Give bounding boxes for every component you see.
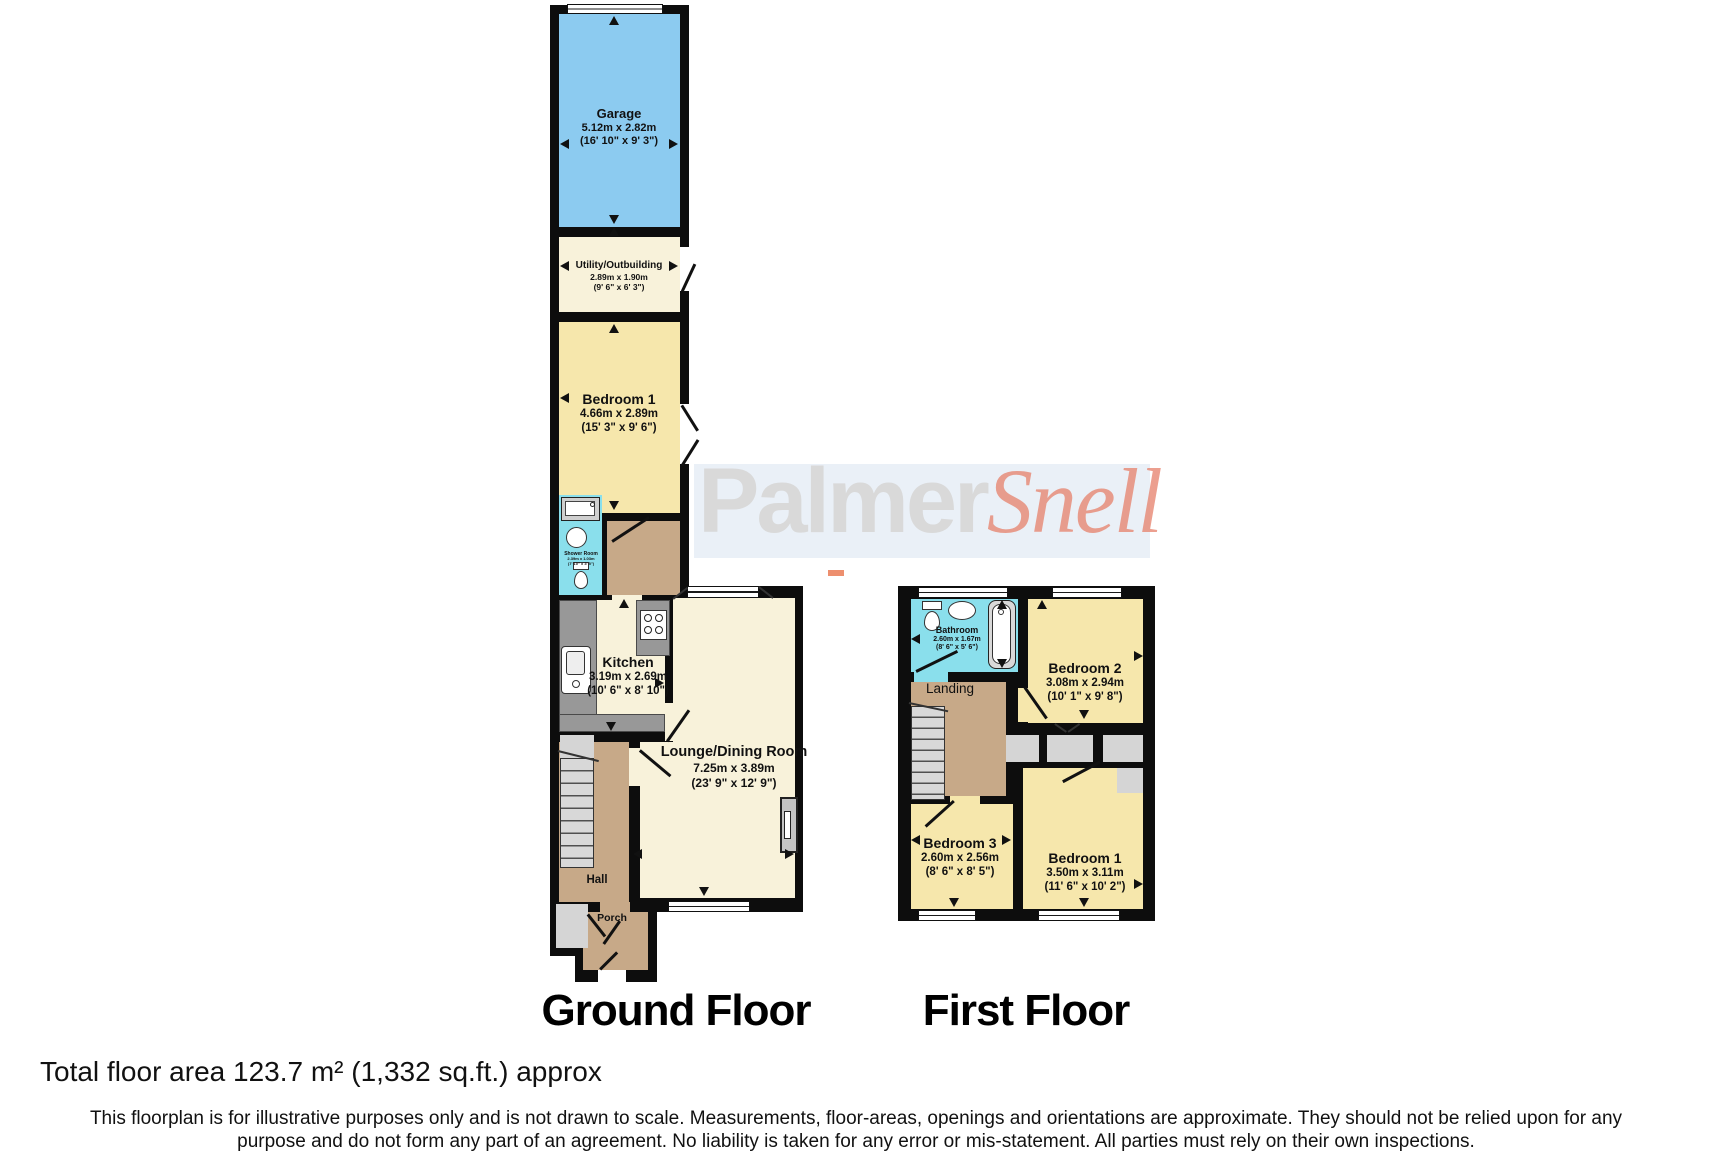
room-label-garage: Garage 5.12m x 2.82m (16' 10" x 9' 3") [580, 106, 658, 148]
room-label-porch: Porch [597, 912, 627, 925]
measure-arrow-icon [560, 139, 569, 149]
measure-arrow-icon [560, 393, 569, 403]
burner-icon [655, 626, 663, 634]
watermark: PalmerSnell [698, 448, 1161, 554]
toilet-cistern-icon [922, 601, 942, 610]
hob-icon [640, 610, 667, 640]
room-label-bedroom2: Bedroom 2 3.08m x 2.94m (10' 1" x 9' 8") [1046, 660, 1124, 704]
room-label-bedroom1-ground: Bedroom 1 4.66m x 2.89m (15' 3" x 9' 6") [580, 391, 658, 435]
measure-arrow-icon [609, 501, 619, 510]
measure-arrow-icon [609, 16, 619, 25]
bedroom1-first-window [1038, 910, 1120, 921]
basin-icon [948, 601, 976, 620]
watermark-dash [828, 570, 844, 576]
bedroom3-window [918, 910, 976, 921]
porch-front-opening [598, 970, 626, 982]
bedroom2-window [1052, 587, 1122, 598]
bathtub-drain [998, 609, 1004, 615]
shower-cubicle-icon [561, 497, 600, 521]
ground-floor-heading: Ground Floor [541, 986, 810, 1036]
burner-icon [655, 614, 663, 622]
fireplace-inner [784, 811, 791, 839]
shower-control [590, 502, 595, 507]
room-label-landing: Landing [926, 681, 974, 697]
burner-icon [644, 626, 652, 634]
measure-arrow-icon [609, 215, 619, 224]
store-room [556, 904, 588, 948]
cupboard-b [1047, 735, 1093, 762]
measure-arrow-icon [1037, 600, 1047, 609]
burner-icon [644, 614, 652, 622]
room-label-bedroom1-first: Bedroom 1 3.50m x 3.11m (11' 6" x 10' 2"… [1045, 850, 1126, 894]
bathroom-window [918, 587, 1008, 598]
stairs-ground [560, 758, 594, 868]
watermark-brand-bold: Palmer [698, 450, 987, 552]
measure-arrow-icon [785, 849, 794, 859]
disclaimer-line-2: purpose and do not form any part of an a… [0, 1131, 1712, 1153]
fireplace-icon [780, 797, 798, 853]
inner-hall [607, 521, 680, 595]
measure-arrow-icon [1002, 835, 1011, 845]
measure-arrow-icon [699, 887, 709, 896]
measure-arrow-icon [669, 139, 678, 149]
room-label-lounge: Lounge/Dining Room 7.25m x 3.89m (23' 9"… [661, 744, 808, 790]
room-label-shower-room: Shower Room 2.39m x 1.03m (7' 10" x 3' 5… [564, 551, 598, 567]
lounge-room-upper [673, 598, 795, 742]
measure-arrow-icon [609, 227, 619, 236]
measure-arrow-icon [1079, 898, 1089, 907]
cupboard-a [1006, 735, 1039, 762]
measure-arrow-icon [911, 835, 920, 845]
lounge-front-window [668, 901, 750, 912]
lounge-bay-window [687, 586, 759, 598]
measure-arrow-icon [606, 722, 616, 731]
floorplan-canvas: PalmerSnell [0, 0, 1712, 1153]
measure-arrow-icon [997, 600, 1007, 609]
garage-window [567, 4, 663, 14]
measure-arrow-icon [609, 324, 619, 333]
measure-arrow-icon [997, 659, 1007, 668]
hall-porch-opening [600, 902, 630, 912]
room-label-bedroom3: Bedroom 3 2.60m x 2.56m (8' 6" x 8' 5") [921, 835, 999, 879]
hall-lounge-opening [629, 748, 640, 786]
room-label-utility: Utility/Outbuilding 2.89m x 1.90m (9' 6"… [576, 260, 663, 292]
measure-arrow-icon [633, 849, 642, 859]
room-label-bathroom: Bathroom 2.60m x 1.67m (8' 6" x 5' 6") [933, 625, 980, 653]
sink-basin [566, 651, 585, 675]
bedroom3-door-opening [950, 796, 980, 804]
cupboard-d [1117, 768, 1143, 793]
room-label-kitchen: Kitchen 3.19m x 2.69m (10' 6" x 8' 10") [587, 654, 669, 698]
basin-icon [566, 527, 587, 548]
room-label-hall: Hall [586, 874, 607, 888]
measure-arrow-icon [911, 634, 920, 644]
watermark-brand-italic: Snell [987, 450, 1161, 552]
measure-arrow-icon [669, 261, 678, 271]
measure-arrow-icon [619, 599, 629, 608]
measure-arrow-icon [949, 898, 959, 907]
measure-arrow-icon [1134, 879, 1143, 889]
toilet-icon [574, 571, 588, 589]
bedroom2-door-opening [1018, 688, 1028, 722]
stairs-first [911, 706, 945, 800]
sink-tap [572, 680, 580, 688]
first-floor-heading: First Floor [923, 986, 1130, 1036]
cupboard-c [1103, 735, 1143, 762]
measure-arrow-icon [1079, 710, 1089, 719]
measure-arrow-icon [560, 261, 569, 271]
total-floor-area: Total floor area 123.7 m² (1,332 sq.ft.)… [40, 1056, 602, 1088]
disclaimer-line-1: This floorplan is for illustrative purpo… [0, 1108, 1712, 1130]
measure-arrow-icon [1134, 651, 1143, 661]
